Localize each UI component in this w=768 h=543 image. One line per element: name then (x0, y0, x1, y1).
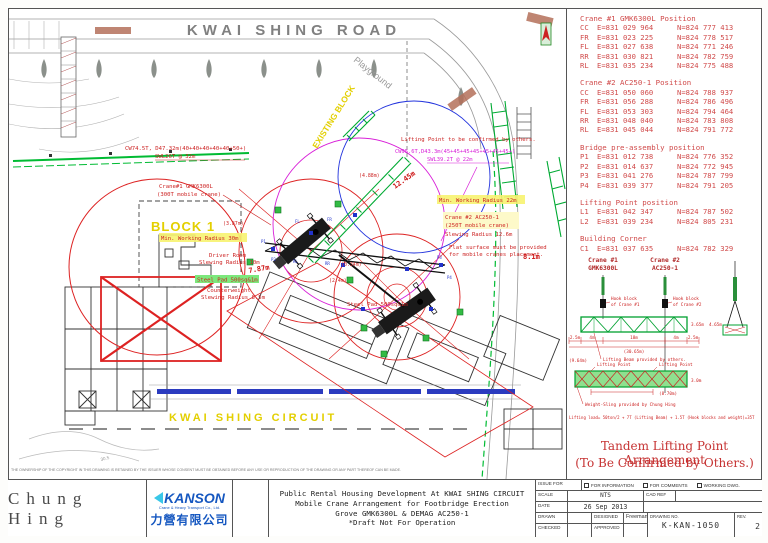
issue-for-label: ISSUE FOR (536, 480, 582, 491)
driver-room-label1: Driver Room (209, 253, 247, 259)
lp-bottom-dim-line (591, 389, 653, 395)
rev-label: REV. (737, 514, 760, 519)
dim-4b: 4m (673, 335, 679, 341)
svg-text:P4: P4 (447, 275, 452, 280)
dim-2-5b: 2.5m (688, 335, 699, 341)
hook1-label-l2: of Crane #1 (611, 302, 640, 308)
table-row: RRE=831 048 040N=824 783 808 (580, 116, 733, 125)
project-line: Mobile Crane Arrangement for Footbridge … (295, 499, 509, 509)
table-row: CCE=831 029 964N=824 777 413 (580, 23, 733, 32)
counterweight-label1: Counterweight (207, 288, 251, 294)
crane2-label: Crane #2 AC250-1 (445, 215, 499, 221)
slewing2-label: Slewing Radius 12.6m (445, 232, 513, 238)
table-row: P4E=831 039 377N=824 791 205 (580, 181, 733, 190)
crane1-swl-note: SWL26T @ 32m (155, 154, 196, 160)
svg-text:FL: FL (295, 219, 300, 224)
hook-block-2 (662, 299, 668, 308)
lifting-confirm-note: Lifting Point to be confirmed by others. (401, 137, 536, 143)
sling-note: Weight-Sling provided by Chung Hing (585, 402, 676, 408)
spreader-rig (723, 261, 747, 335)
table-row: RRE=831 030 821N=824 782 759 (580, 52, 733, 61)
building-corner-table: Building Corner C1E=831 037 635N=824 782… (580, 234, 733, 253)
checked-value (568, 524, 592, 537)
svg-text:FR: FR (327, 217, 332, 222)
drawing-info-table: ISSUE FOR FOR INFORMATIONFOR COMMENTSWOR… (536, 480, 762, 537)
lifting-point-label-2: Lifting Point (659, 362, 693, 368)
table-row: FRE=831 056 288N=824 786 496 (580, 97, 733, 106)
playground-label: Playground (352, 55, 394, 91)
crane2-swl-note: SWL39.2T @ 22m (427, 157, 472, 163)
cad-ref-value (676, 491, 762, 502)
table-row: C1E=831 037 635N=824 782 329 (580, 244, 733, 253)
hook-pendant-1 (602, 277, 605, 295)
crane1-type-label: (300T mobile crane) (157, 192, 221, 198)
checked-label: CHECKED (536, 524, 568, 537)
coordinate-tables: Crane #1 GMK6300L Position CCE=831 029 9… (580, 14, 733, 261)
table-row: RLE=831 045 044N=824 791 772 (580, 125, 733, 134)
approved-label: APPROVED (592, 524, 624, 537)
crane1-position-table: Crane #1 GMK6300L Position CCE=831 029 9… (580, 14, 733, 70)
drawing-no-value: K-KAN-1050 (650, 521, 732, 530)
lifting-point-label-1: Lifting Point (597, 362, 631, 368)
table-title: Lifting Point position (580, 198, 733, 207)
beam-note-leader (594, 333, 601, 359)
dim-total: (30.65m) (624, 349, 645, 355)
table-row: CCE=831 050 060N=824 788 937 (580, 88, 733, 97)
svg-text:RR: RR (325, 261, 330, 266)
logo-subtitle: Crane & Heavy Transport Co., Ltd. (159, 505, 220, 510)
working-radius-magenta (273, 138, 445, 310)
table-row: P1E=831 012 738N=824 776 352 (580, 152, 733, 161)
block1-label: BLOCK 1 (151, 219, 215, 234)
issue-checkbox[interactable]: FOR INFORMATION (584, 483, 634, 488)
top-road (9, 19, 518, 479)
table-title: Bridge pre-assembly position (580, 143, 733, 152)
crane2-boom-note: CW95.6T,D43.3m(45+45+45+45+45+45+45+) (395, 149, 515, 155)
table-title: Crane #2 AC250-1 Position (580, 78, 733, 87)
block1-boundary (139, 201, 241, 287)
right-panel: Crane #1 GMK6300L Position CCE=831 029 9… (566, 9, 761, 479)
circuit-road-label: KWAI SHING CIRCUIT (169, 412, 337, 424)
drawing-sheet: KWAI SHING ROAD Playground (0, 0, 768, 543)
flat-surface-label1: Flat surface must be provided (449, 245, 547, 251)
designer-name: Freeman (624, 513, 648, 524)
drawn-label: DRAWN (536, 513, 568, 524)
bridge-position-table: Bridge pre-assembly position P1E=831 012… (580, 143, 733, 190)
issue-checkbox[interactable]: WORKING DWG. (697, 483, 740, 488)
table-row: P3E=831 041 276N=824 787 799 (580, 171, 733, 180)
truss-height-dim2: 4.65m (709, 322, 722, 328)
dim-488: (4.88m) (359, 173, 380, 179)
tandem-subtitle: (To Be Confirmed by Others.) (567, 456, 762, 470)
lp-left-dim: (9.64m) (569, 358, 587, 364)
checkbox-icon[interactable] (697, 483, 702, 488)
drawing-no-cell: DRAWING NO. K-KAN-1050 (648, 513, 735, 537)
approver-name (624, 524, 648, 537)
covered-walkway (149, 385, 521, 399)
min-radius2-label: Min. Working Radius 22m (439, 198, 517, 204)
steel-pad-label2: Steel Pad 500sq&1m (347, 302, 408, 308)
project-title: Public Rental Housing Development At KWA… (269, 480, 536, 537)
table-row: FLE=831 053 303N=824 794 464 (580, 107, 733, 116)
company-name: Chung Hing (8, 480, 147, 537)
hook-pendant-2 (664, 277, 667, 295)
date-value: 26 Sep 2013 (568, 502, 644, 513)
lattice-edge-right (547, 157, 566, 237)
logo-triangle-icon (154, 492, 163, 504)
load-note: Lifting load= 50ton/2 + 7T (Lifting Beam… (569, 415, 755, 420)
date-label: DATE (536, 502, 568, 513)
diagram-crane2-model: AC250-1 (652, 265, 678, 272)
diagram-crane1-header: Crane #1 (588, 257, 618, 264)
issue-checkbox[interactable]: FOR COMMENTS (643, 483, 688, 488)
title-block: Chung Hing KANSON Crane & Heavy Transpor… (8, 479, 762, 536)
dim-81: 8.1m (523, 253, 540, 261)
table-row: RLE=831 035 234N=824 775 488 (580, 61, 733, 70)
lower-truss (575, 371, 687, 387)
cad-ref-label: CAD REF (644, 491, 676, 502)
date-spare-cell (644, 502, 762, 513)
site-boundary-red (101, 263, 533, 457)
dim-1245: 12.45m (392, 170, 417, 191)
crane1-label: Crane#1 GMK6300L (159, 184, 214, 190)
table-title: Crane #1 GMK6300L Position (580, 14, 733, 23)
dim-18: 18m (630, 335, 638, 341)
lp-bottom-dim: (8.70m) (659, 391, 677, 397)
checkbox-icon[interactable] (584, 483, 589, 488)
table-title: Building Corner (580, 234, 733, 243)
project-line: *Draft Not For Operation (349, 518, 456, 528)
tandem-lifting-diagram: Crane #1 GMK6300L Crane #2 AC250-1 Hook … (567, 253, 762, 433)
lattice-segments-top (343, 111, 375, 141)
hook-block-1 (600, 299, 606, 308)
drawing-no-label: DRAWING NO. (650, 514, 732, 519)
hook1-label-l1: Hook block (611, 296, 637, 302)
counterweight-label2: Slewing Radius 8.5m (201, 295, 266, 301)
crane2-type-label: (250T mobile crane) (445, 223, 509, 229)
north-arrow-icon (541, 23, 551, 45)
svg-text:P1: P1 (261, 239, 266, 244)
lp-height-dim: 3.0m (691, 378, 702, 384)
min-radius1-label: Min. Working Radius 30m (161, 236, 239, 242)
contour-label: 30.5 (100, 455, 110, 462)
svg-text:P3: P3 (437, 255, 442, 260)
upper-truss (581, 317, 687, 332)
truss-height-dim1: 3.65m (691, 322, 704, 328)
project-line: Public Rental Housing Development At KWA… (280, 489, 525, 499)
project-line: Grove GMK6300L & DEMAG AC250-1 (335, 509, 469, 519)
contour-lines (19, 432, 159, 462)
hook2-label-l1: Hook block (673, 296, 699, 302)
lifting-point-table: Lifting Point position L1E=831 042 347N=… (580, 198, 733, 226)
drawn-value (568, 513, 592, 524)
title-block-spacer (233, 480, 269, 537)
dim-4a: 4m (589, 335, 595, 341)
diagram-crane2-header: Crane #2 (650, 257, 680, 264)
road-name-label: KWAI SHING ROAD (187, 22, 401, 39)
rev-cell: REV. 2 (735, 513, 762, 537)
logo-chinese-name: 力營有限公司 (150, 511, 228, 528)
steel-pad-label1: Steel Pad 500sq&1m (197, 278, 258, 284)
tree-icons (41, 59, 463, 106)
svg-text:RL: RL (293, 259, 298, 264)
left-structure (61, 37, 76, 137)
table-row: FLE=831 027 638N=824 771 246 (580, 42, 733, 51)
logo-text: KANSON (164, 490, 225, 506)
table-row: L1E=831 042 347N=824 787 502 (580, 207, 733, 216)
checkbox-icon[interactable] (643, 483, 648, 488)
scale-value: NTS (568, 491, 644, 502)
svg-text:P2: P2 (271, 257, 276, 262)
hook2-label-l2: of Crane #2 (673, 302, 702, 308)
table-row: P2E=831 014 637N=824 772 945 (580, 162, 733, 171)
stair-ladder (517, 107, 531, 159)
dim-24: (2.4m) (329, 278, 347, 284)
dim-2-5a: 2.5m (570, 335, 581, 341)
issue-checkboxes: FOR INFORMATIONFOR COMMENTSWORKING DWG. (582, 480, 762, 491)
driver-room-label2: Slewing Radius 10m (199, 260, 260, 266)
crane1-boom-note: CW74.5T, D47.32m(40+40+40+40+40+50+) (125, 146, 246, 152)
sling-note-leader (577, 387, 583, 404)
diagram-crane1-model: GMK6300L (588, 265, 618, 272)
site-plan: KWAI SHING ROAD Playground (9, 9, 566, 479)
table-row: L2E=831 039 234N=824 805 231 (580, 217, 733, 226)
copyright-disclaimer: THE OWNERSHIP OF THE COPYRIGHT IN THIS D… (11, 468, 401, 472)
table-row: FRE=831 023 225N=824 778 517 (580, 33, 733, 42)
kanson-logo: KANSON Crane & Heavy Transport Co., Ltd.… (147, 480, 233, 537)
dim-387: (3.87m) (223, 221, 244, 227)
crane2-position-table: Crane #2 AC250-1 Position CCE=831 050 06… (580, 78, 733, 134)
scale-label: SCALE (536, 491, 568, 502)
dim-034: (0.34m) (341, 262, 362, 268)
rev-value: 2 (737, 522, 760, 531)
designed-label: DESIGNED (592, 513, 624, 524)
